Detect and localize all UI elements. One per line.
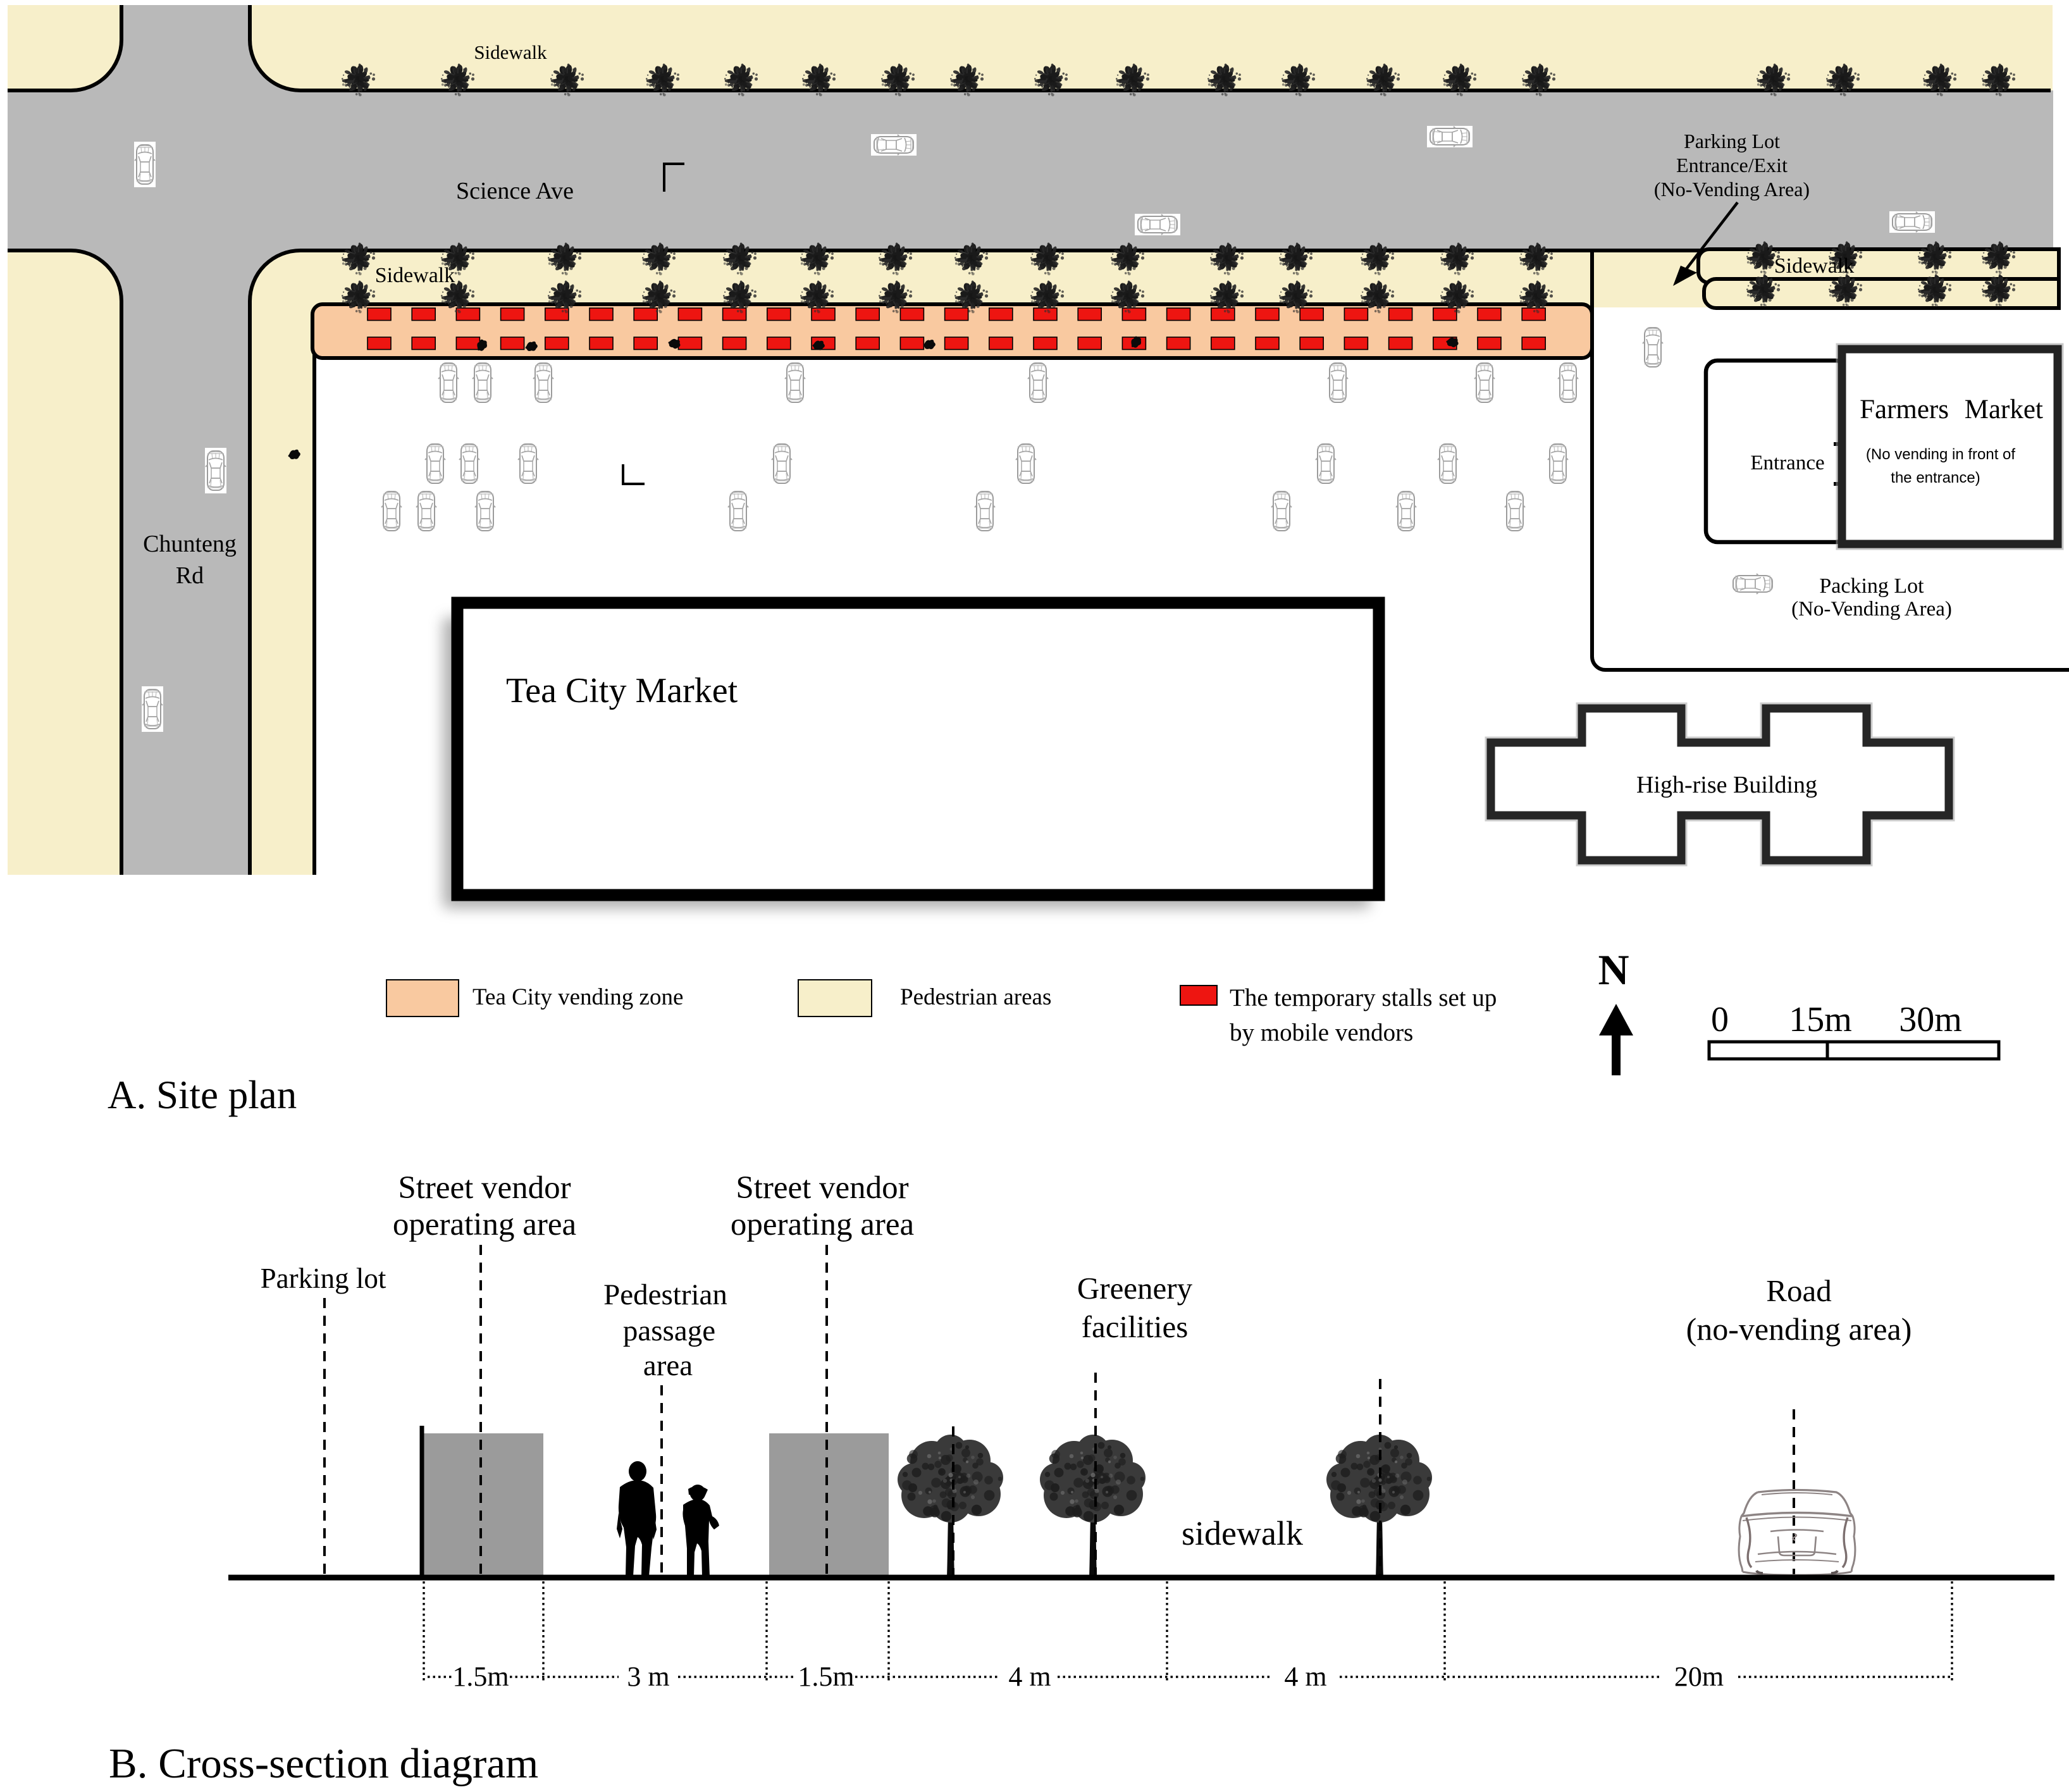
svg-text:15m: 15m [1789,1000,1852,1039]
svg-text:(No-Vending Area): (No-Vending Area) [1654,178,1810,201]
svg-text:1.5m: 1.5m [798,1661,854,1692]
svg-text:operating area: operating area [393,1207,576,1242]
svg-text:Packing Lot: Packing Lot [1819,574,1924,598]
svg-text:passage: passage [623,1314,715,1347]
svg-text:Sidewalk: Sidewalk [474,41,547,63]
svg-text:Tea City vending zone: Tea City vending zone [472,984,683,1010]
svg-text:30m: 30m [1899,1000,1962,1039]
svg-text:4 m: 4 m [1008,1661,1051,1692]
svg-text:20m: 20m [1674,1661,1724,1692]
svg-text:N: N [1598,946,1629,994]
svg-text:(No-Vending Area): (No-Vending Area) [1791,598,1952,621]
svg-text:A. Site plan: A. Site plan [108,1073,297,1117]
svg-text:Entrance/Exit: Entrance/Exit [1676,154,1788,176]
svg-text:the entrance): the entrance) [1891,469,1980,486]
svg-text:1.5m: 1.5m [452,1661,509,1692]
svg-text:Rd: Rd [176,562,204,589]
svg-text:Farmers Market: Farmers Market [1860,395,2043,424]
svg-text:(no-vending area): (no-vending area) [1686,1311,1912,1347]
svg-text:Science Ave: Science Ave [456,178,574,204]
svg-text:4 m: 4 m [1284,1661,1326,1692]
svg-text:facilities: facilities [1082,1309,1189,1344]
svg-text:Parking lot: Parking lot [261,1263,386,1294]
svg-text:(No vending in front of: (No vending in front of [1866,446,2015,463]
svg-text:operating area: operating area [731,1207,914,1242]
svg-text:Road: Road [1766,1273,1831,1308]
svg-text:B. Cross-section diagram: B. Cross-section diagram [109,1740,538,1787]
svg-text:Pedestrian: Pedestrian [603,1278,727,1311]
svg-text:0: 0 [1711,1000,1729,1039]
svg-text:High-rise Building: High-rise Building [1636,772,1817,798]
svg-text:Parking Lot: Parking Lot [1684,130,1780,152]
svg-text:Greenery: Greenery [1077,1271,1193,1306]
svg-text:sidewalk: sidewalk [1182,1514,1303,1552]
svg-text:Sidewalk: Sidewalk [375,264,455,287]
svg-text:The temporary stalls set up: The temporary stalls set up [1230,984,1497,1011]
svg-text:Entrance: Entrance [1750,452,1824,474]
svg-text:Pedestrian areas: Pedestrian areas [900,984,1051,1010]
svg-text:Tea City Market: Tea City Market [506,671,738,710]
svg-text:Street vendor: Street vendor [398,1170,571,1206]
svg-text:area: area [643,1349,693,1382]
svg-text:3 m: 3 m [627,1661,669,1692]
svg-text:Chunteng: Chunteng [143,531,237,557]
svg-text:Street vendor: Street vendor [736,1170,908,1206]
svg-text:by mobile vendors: by mobile vendors [1230,1019,1413,1046]
svg-text:Sidewalk: Sidewalk [1774,254,1855,278]
